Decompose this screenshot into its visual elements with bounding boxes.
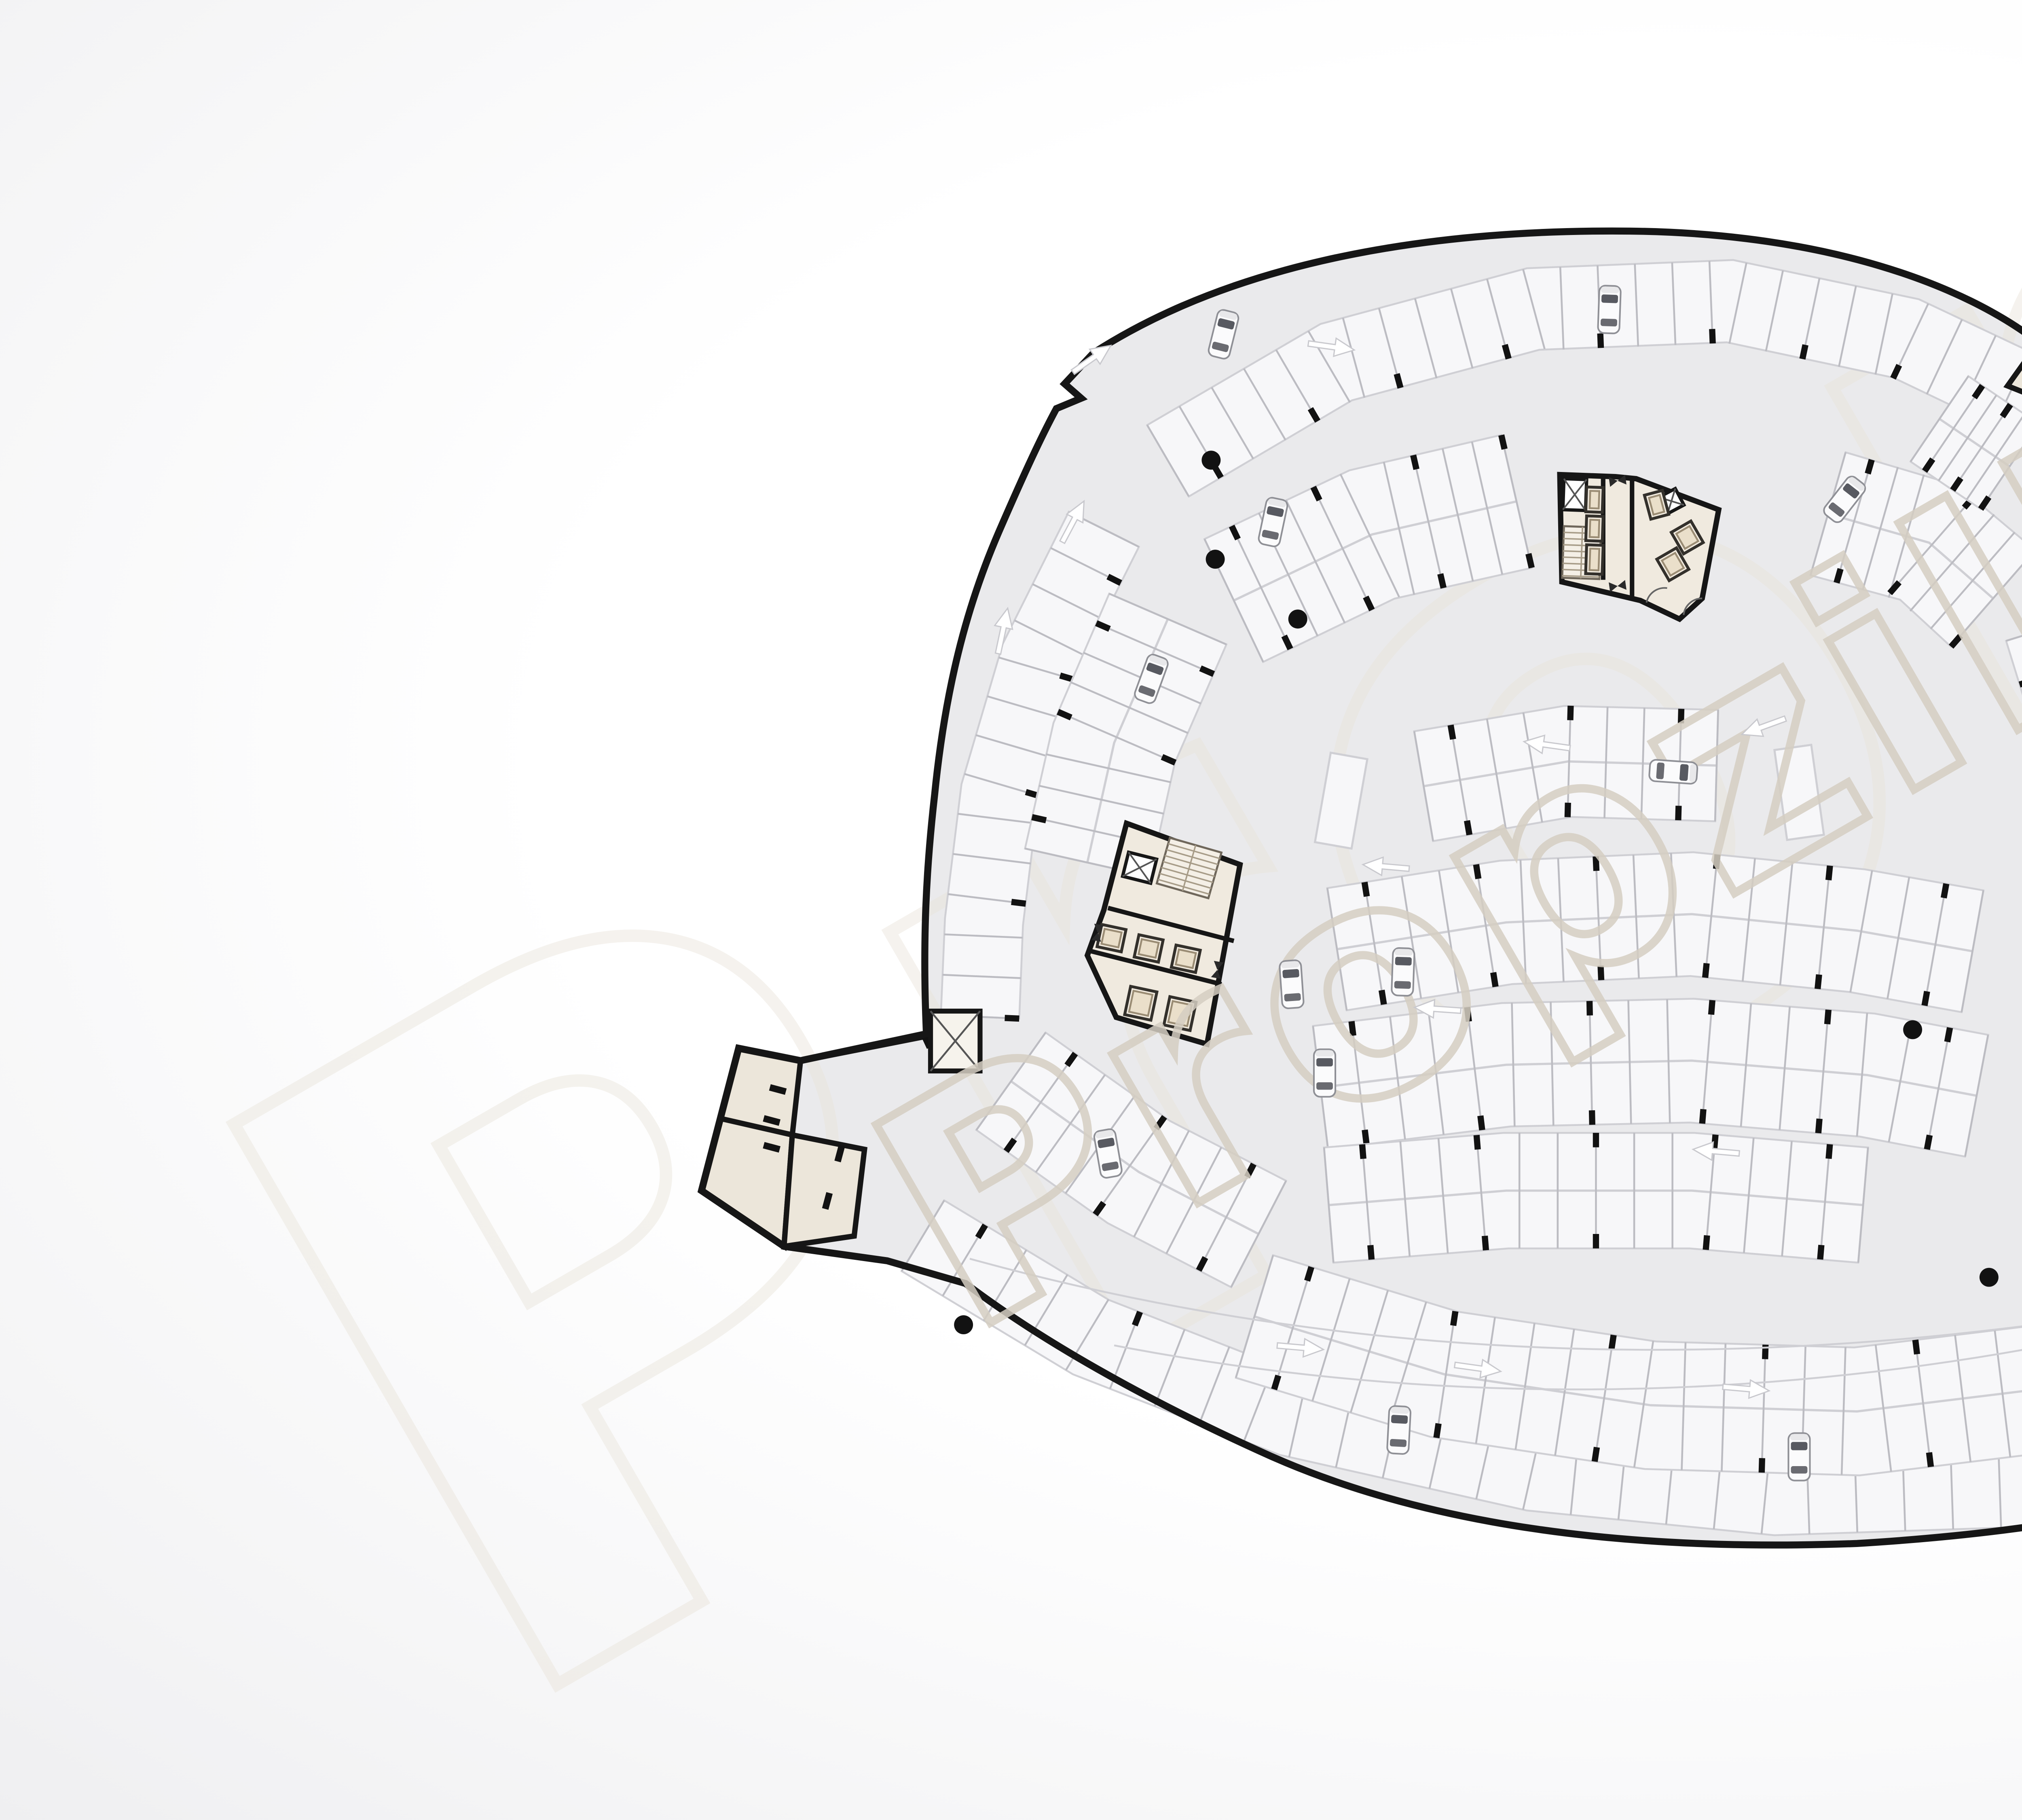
elevator-shaft bbox=[1586, 545, 1603, 574]
ext-room-right bbox=[784, 1135, 865, 1246]
parking-floor-plan: PropzillaPropzilla® bbox=[0, 0, 2022, 1820]
column-round bbox=[1288, 609, 1307, 629]
shaft-x-room bbox=[1563, 479, 1587, 510]
car-icon bbox=[1649, 760, 1698, 784]
floor-plan-canvas: PropzillaPropzilla® bbox=[0, 0, 2022, 1820]
column-round bbox=[1980, 1268, 1999, 1287]
elevator-shaft bbox=[1586, 487, 1603, 512]
column-round bbox=[1201, 451, 1220, 470]
car-icon bbox=[1598, 286, 1621, 334]
column-round bbox=[1206, 550, 1225, 569]
car-icon bbox=[1392, 948, 1415, 996]
elevator-shaft bbox=[1586, 516, 1603, 542]
car-icon bbox=[1279, 960, 1304, 1009]
car-icon bbox=[1387, 1406, 1411, 1454]
car-icon bbox=[1314, 1049, 1335, 1096]
column-round bbox=[1903, 1020, 1922, 1039]
shaft-x-room bbox=[1123, 852, 1157, 883]
car-icon bbox=[1788, 1433, 1810, 1480]
